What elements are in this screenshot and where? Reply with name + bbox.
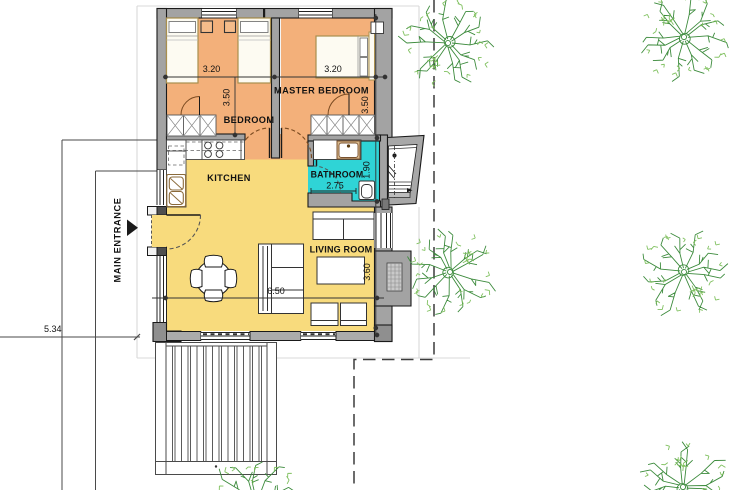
svg-text:1.90: 1.90	[362, 161, 372, 179]
svg-text:3.20: 3.20	[203, 64, 221, 74]
svg-text:5.34: 5.34	[44, 324, 62, 334]
svg-text:BEDROOM: BEDROOM	[224, 115, 275, 125]
svg-text:MAIN ENTRANCE: MAIN ENTRANCE	[113, 198, 123, 283]
svg-text:3.60: 3.60	[362, 263, 372, 281]
svg-text:3.50: 3.50	[360, 96, 370, 114]
svg-text:2.75: 2.75	[326, 181, 344, 191]
svg-text:KITCHEN: KITCHEN	[207, 173, 251, 183]
svg-text:6.50: 6.50	[267, 286, 285, 296]
svg-text:3.20: 3.20	[324, 64, 342, 74]
svg-text:MASTER BEDROOM: MASTER BEDROOM	[274, 86, 369, 96]
svg-text:BATHROOM: BATHROOM	[311, 170, 364, 180]
svg-text:3.50: 3.50	[222, 89, 232, 107]
svg-text:LIVING ROOM: LIVING ROOM	[310, 245, 373, 255]
